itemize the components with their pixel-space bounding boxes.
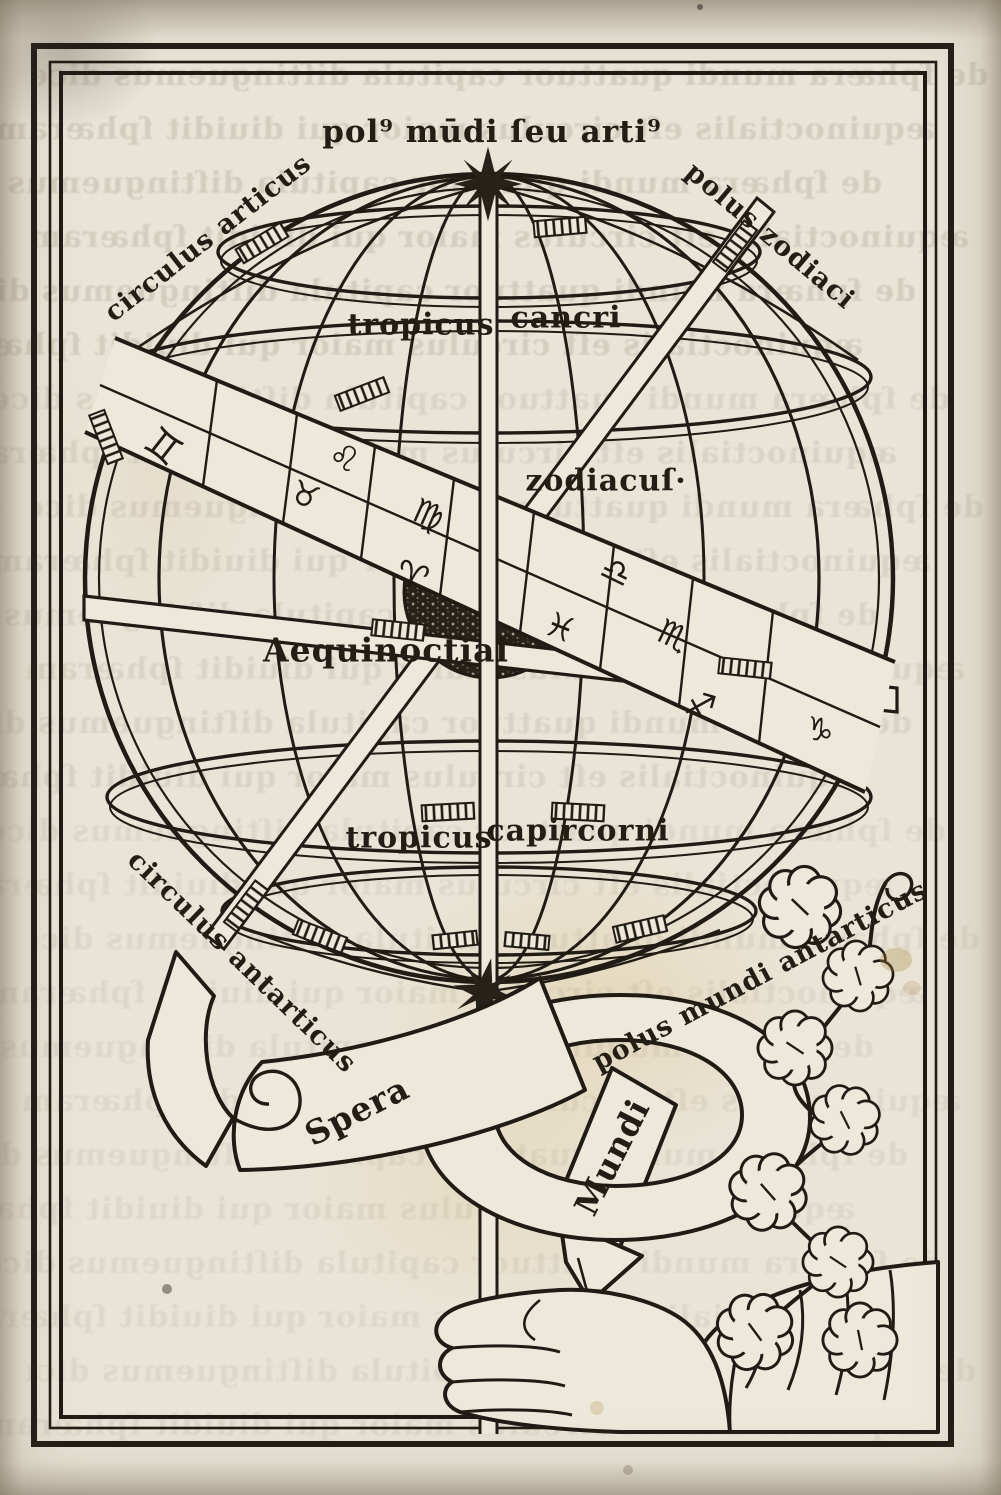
ink-speck (697, 4, 703, 10)
book-page: de ſphæra mundi quattuor capitula diſtin… (0, 0, 1001, 1495)
polar-axis (480, 176, 497, 1434)
pole-star-north (454, 147, 522, 222)
woodcut-armillary-sphere: ♊♌♉♍♈♎♓♏♐♑ (0, 0, 1001, 1495)
